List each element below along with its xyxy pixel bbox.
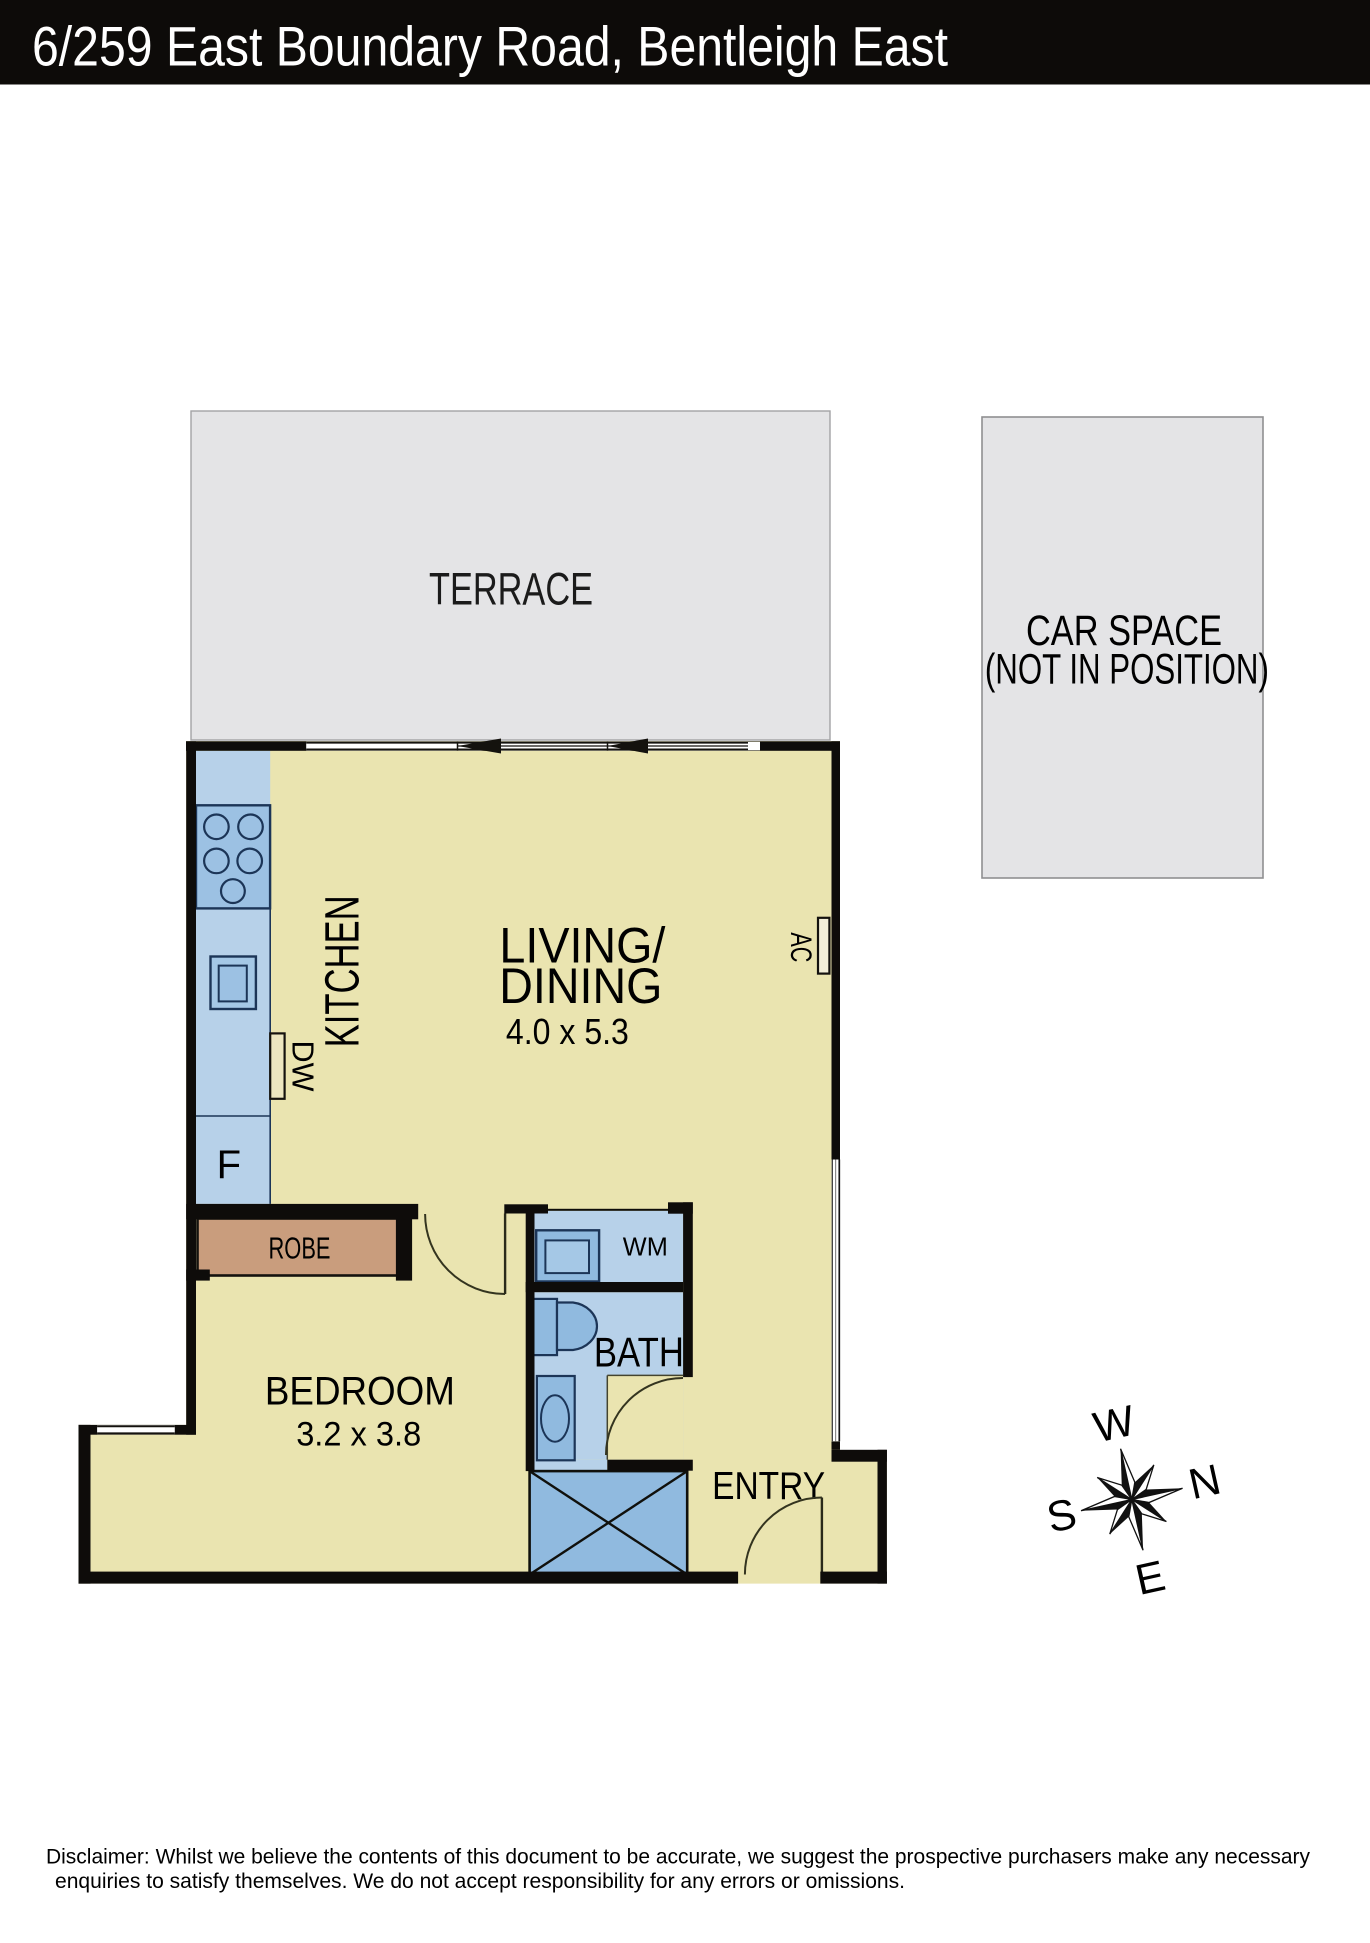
svg-text:BEDROOM: BEDROOM <box>265 1369 455 1413</box>
svg-text:F: F <box>217 1143 241 1187</box>
svg-text:enquiries to satisfy themselve: enquiries to satisfy themselves. We do n… <box>55 1869 905 1893</box>
svg-text:4.0 x 5.3: 4.0 x 5.3 <box>506 1011 629 1052</box>
svg-text:KITCHEN: KITCHEN <box>317 895 370 1047</box>
svg-text:ROBE: ROBE <box>269 1230 331 1265</box>
svg-text:DW: DW <box>286 1041 321 1093</box>
svg-text:AC: AC <box>784 932 817 962</box>
svg-text:(NOT IN POSITION): (NOT IN POSITION) <box>985 646 1269 694</box>
svg-text:ENTRY: ENTRY <box>712 1465 825 1508</box>
svg-text:BATH: BATH <box>594 1328 684 1375</box>
svg-text:TERRACE: TERRACE <box>429 564 593 615</box>
svg-text:WM: WM <box>623 1232 668 1262</box>
svg-text:3.2 x 3.8: 3.2 x 3.8 <box>296 1415 421 1453</box>
svg-text:Disclaimer: Whilst we believe: Disclaimer: Whilst we believe the conten… <box>46 1845 1310 1869</box>
svg-text:DINING: DINING <box>499 958 662 1014</box>
svg-text:6/259 East Boundary Road, Bent: 6/259 East Boundary Road, Bentleigh East <box>32 15 948 78</box>
